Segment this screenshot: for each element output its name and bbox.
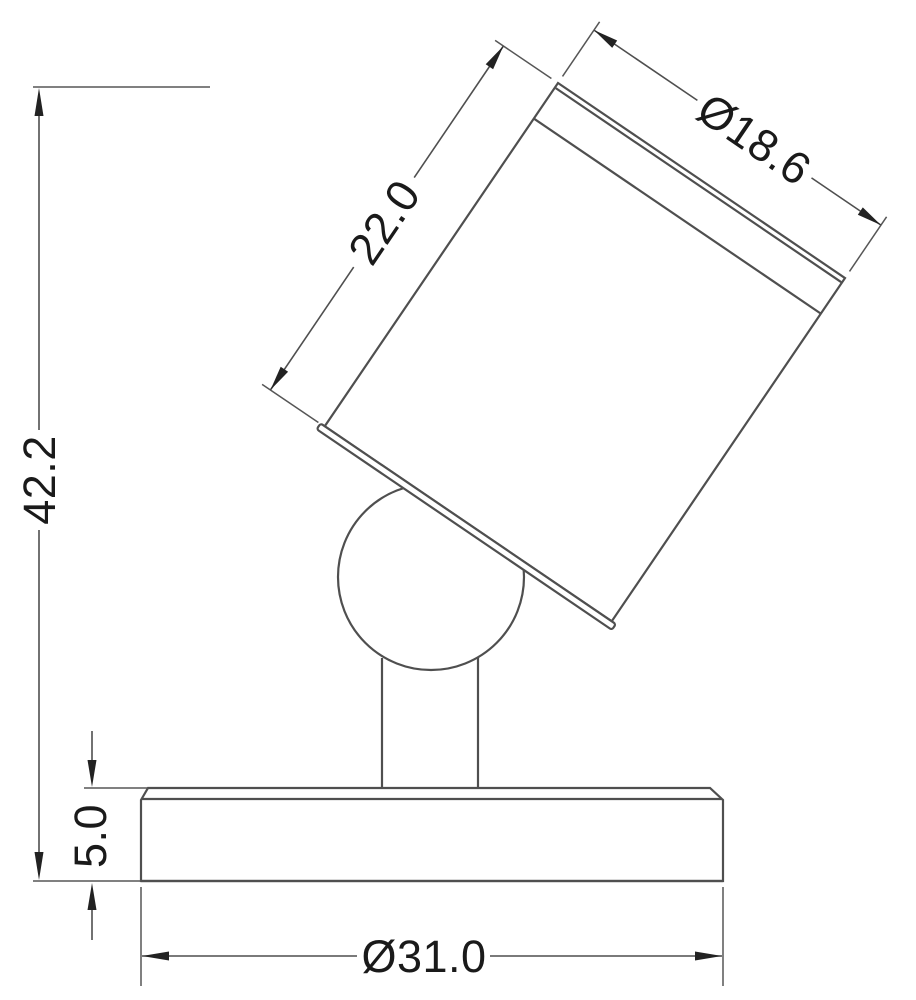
dimension-base-thickness: 5.0 — [65, 731, 148, 940]
arrowhead-right — [695, 952, 722, 961]
dim-label-base-diameter: Ø31.0 — [361, 931, 486, 982]
extension-line-head-bottom — [262, 384, 318, 422]
arrowhead-upper — [486, 46, 504, 69]
arrowhead-lower — [270, 367, 288, 390]
dim-label-overall-height: 42.2 — [14, 435, 65, 525]
dim-label-head-length: 22.0 — [338, 171, 430, 274]
extension-line-left — [563, 22, 600, 77]
dimension-base-diameter: Ø31.0 — [141, 887, 723, 986]
stem — [382, 657, 478, 788]
base — [141, 788, 723, 881]
arrowhead-up — [35, 88, 44, 116]
spotlight-technical-drawing: 42.2 22.0 Ø18.6 5.0 Ø31.0 — [0, 0, 916, 1000]
dimension-overall-height: 42.2 — [14, 87, 210, 881]
arrowhead-right — [858, 207, 881, 225]
dim-label-base-thickness: 5.0 — [65, 804, 116, 868]
dim-label-head-diameter: Ø18.6 — [688, 83, 820, 195]
arrowhead-down — [35, 852, 44, 880]
arrowhead-left — [594, 30, 617, 48]
arrowhead-up — [88, 883, 97, 910]
base-outline — [141, 788, 723, 881]
arrowhead-down — [88, 760, 97, 787]
drawing-canvas: 42.2 22.0 Ø18.6 5.0 Ø31.0 — [0, 0, 916, 1000]
arrowhead-left — [142, 952, 169, 961]
